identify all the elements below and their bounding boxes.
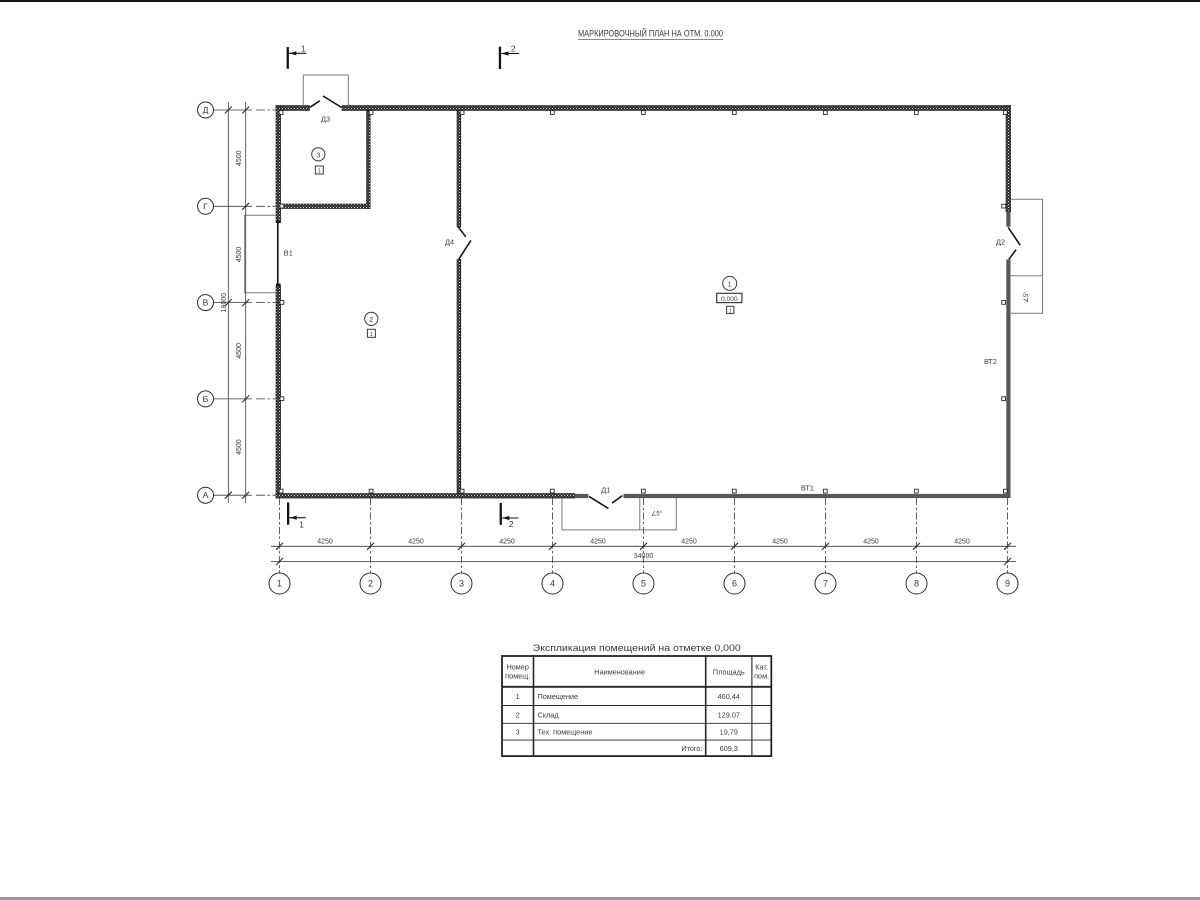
- svg-text:3: 3: [316, 152, 320, 159]
- svg-text:4250: 4250: [681, 539, 697, 546]
- svg-text:Б: Б: [203, 394, 209, 404]
- svg-text:4250: 4250: [499, 539, 515, 546]
- svg-text:7: 7: [823, 579, 828, 589]
- svg-text:1: 1: [301, 43, 306, 53]
- svg-text:2: 2: [509, 519, 514, 529]
- svg-text:1: 1: [370, 332, 373, 338]
- svg-text:4500: 4500: [236, 150, 243, 166]
- svg-text:помещ.: помещ.: [505, 672, 530, 681]
- svg-text:1: 1: [299, 520, 304, 530]
- svg-text:Наименование: Наименование: [594, 668, 645, 677]
- svg-text:8: 8: [914, 579, 919, 589]
- svg-text:4: 4: [550, 579, 555, 589]
- svg-text:Тех. помещение: Тех. помещение: [538, 728, 593, 737]
- svg-text:Экспликация помещений на отмет: Экспликация помещений на отметке 0,000: [533, 643, 741, 654]
- svg-text:Д: Д: [203, 105, 209, 115]
- svg-text:Склад: Склад: [538, 710, 560, 719]
- svg-text:1: 1: [318, 169, 321, 175]
- svg-text:∠5°: ∠5°: [651, 511, 663, 518]
- svg-text:МАРКИРОВОЧНЫЙ ПЛАН НА ОТМ. 0.0: МАРКИРОВОЧНЫЙ ПЛАН НА ОТМ. 0.000: [578, 28, 723, 40]
- svg-text:4250: 4250: [408, 539, 424, 546]
- svg-text:Д2: Д2: [996, 238, 1005, 247]
- svg-text:Кат.: Кат.: [755, 663, 768, 672]
- svg-text:1: 1: [729, 308, 732, 314]
- svg-text:1: 1: [516, 692, 520, 701]
- svg-text:4250: 4250: [772, 539, 788, 546]
- svg-text:129,07: 129,07: [718, 710, 740, 719]
- svg-text:Площадь: Площадь: [713, 668, 745, 677]
- svg-text:1: 1: [728, 281, 732, 288]
- svg-text:3: 3: [459, 579, 464, 589]
- svg-text:Д3: Д3: [321, 115, 330, 124]
- svg-text:34000: 34000: [634, 553, 654, 560]
- svg-text:5: 5: [641, 579, 646, 589]
- svg-text:2: 2: [516, 710, 520, 719]
- svg-text:В: В: [203, 298, 209, 308]
- svg-text:4250: 4250: [954, 539, 970, 546]
- svg-text:6: 6: [732, 579, 737, 589]
- svg-text:2: 2: [369, 317, 373, 324]
- svg-text:4250: 4250: [590, 539, 606, 546]
- svg-text:4500: 4500: [236, 343, 243, 359]
- svg-text:ВТ1: ВТ1: [801, 483, 814, 492]
- svg-text:Номер: Номер: [506, 663, 528, 672]
- svg-text:Итого:: Итого:: [681, 744, 702, 753]
- svg-text:4250: 4250: [863, 539, 879, 546]
- svg-text:4250: 4250: [317, 539, 333, 546]
- svg-text:Г: Г: [203, 201, 208, 211]
- svg-text:2: 2: [511, 44, 516, 54]
- svg-text:9: 9: [1005, 579, 1010, 589]
- svg-text:пом.: пом.: [754, 672, 769, 681]
- svg-text:0.000: 0.000: [721, 296, 738, 303]
- svg-text:2: 2: [368, 579, 373, 589]
- svg-text:∠5°: ∠5°: [1023, 291, 1030, 303]
- svg-text:Помещение: Помещение: [538, 692, 579, 701]
- svg-text:609,3: 609,3: [720, 744, 738, 753]
- svg-text:18000: 18000: [221, 293, 228, 313]
- svg-text:ВТ2: ВТ2: [984, 357, 997, 366]
- svg-text:3: 3: [516, 728, 520, 737]
- svg-text:Д4: Д4: [445, 237, 454, 246]
- svg-text:4500: 4500: [236, 247, 243, 263]
- svg-text:Д1: Д1: [601, 486, 610, 495]
- svg-text:1: 1: [277, 579, 282, 589]
- svg-text:А: А: [203, 490, 209, 500]
- svg-text:460,44: 460,44: [718, 692, 740, 701]
- svg-text:4500: 4500: [236, 439, 243, 455]
- svg-text:19,79: 19,79: [720, 728, 738, 737]
- svg-text:В1: В1: [284, 249, 293, 258]
